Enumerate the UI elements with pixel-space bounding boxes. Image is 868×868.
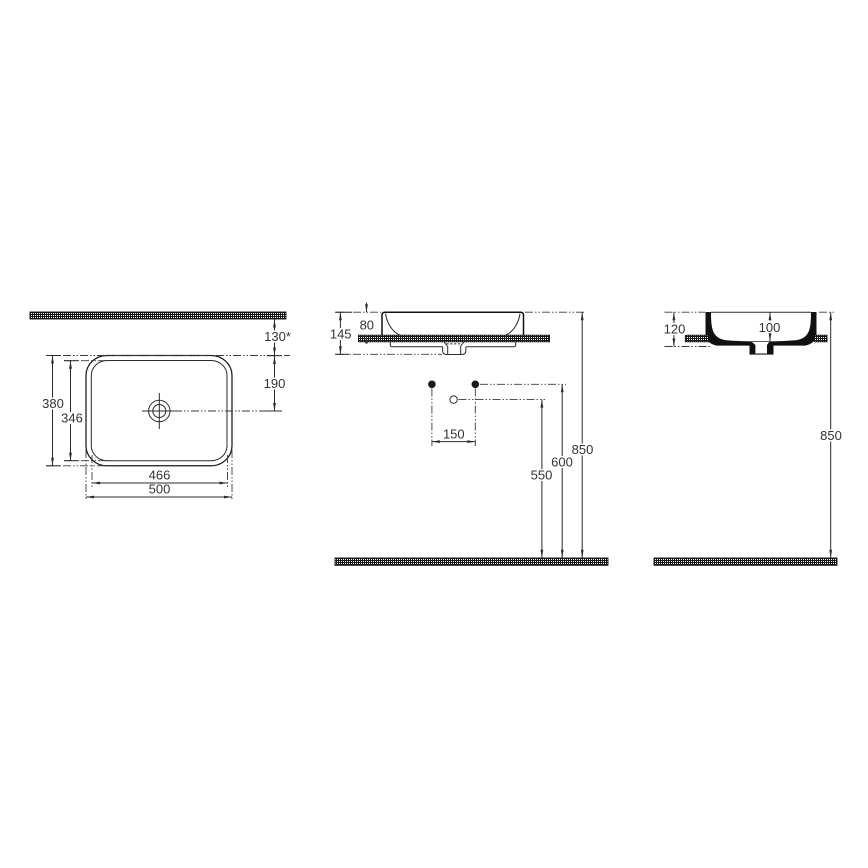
svg-text:190: 190 (264, 376, 286, 391)
svg-text:500: 500 (149, 482, 171, 497)
svg-text:150: 150 (443, 427, 465, 442)
svg-text:100: 100 (759, 320, 781, 335)
svg-text:346: 346 (61, 411, 83, 426)
svg-text:120: 120 (664, 322, 686, 337)
svg-text:130*: 130* (264, 329, 291, 344)
svg-text:466: 466 (149, 468, 171, 483)
svg-text:850: 850 (820, 428, 842, 443)
svg-text:145: 145 (330, 327, 352, 342)
svg-text:80: 80 (360, 318, 374, 333)
svg-text:850: 850 (572, 442, 594, 457)
svg-text:550: 550 (531, 468, 553, 483)
svg-text:380: 380 (42, 396, 64, 411)
svg-text:600: 600 (551, 455, 573, 470)
